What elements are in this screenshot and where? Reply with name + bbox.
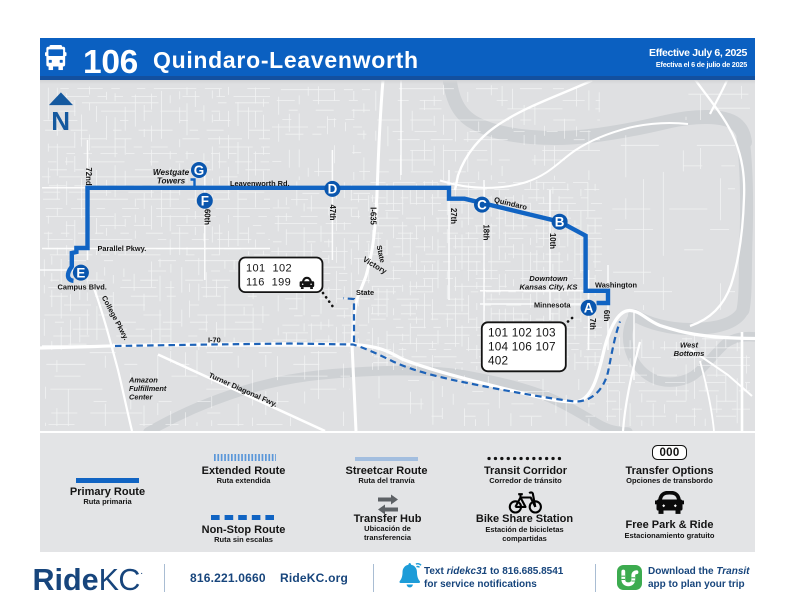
svg-text:6th: 6th bbox=[602, 309, 611, 321]
svg-text:Leavenworth Rd.: Leavenworth Rd. bbox=[230, 179, 290, 188]
svg-text:18th: 18th bbox=[482, 224, 491, 240]
svg-text:Towers: Towers bbox=[157, 176, 186, 185]
svg-text:N: N bbox=[51, 106, 70, 136]
svg-text:D: D bbox=[328, 181, 338, 196]
svg-text:101 102: 101 102 bbox=[246, 262, 292, 274]
svg-text:I-70: I-70 bbox=[208, 335, 221, 344]
svg-text:C: C bbox=[477, 197, 487, 212]
svg-text:Parallel Pkwy.: Parallel Pkwy. bbox=[98, 244, 147, 253]
svg-text:G: G bbox=[194, 162, 204, 177]
svg-text:B: B bbox=[555, 214, 565, 229]
svg-text:Kansas City, KS: Kansas City, KS bbox=[520, 282, 578, 291]
svg-text:Washington: Washington bbox=[595, 280, 637, 289]
svg-text:Campus Blvd.: Campus Blvd. bbox=[58, 282, 107, 291]
svg-text:27th: 27th bbox=[449, 207, 458, 223]
svg-text:A: A bbox=[584, 300, 594, 315]
svg-text:47th: 47th bbox=[328, 204, 337, 220]
svg-text:116 199: 116 199 bbox=[246, 276, 291, 288]
svg-text:104 106 107: 104 106 107 bbox=[488, 339, 556, 353]
svg-text:101 102 103: 101 102 103 bbox=[488, 325, 556, 339]
svg-text:Minnesota: Minnesota bbox=[534, 300, 571, 309]
svg-text:State: State bbox=[356, 288, 374, 297]
svg-text:Bottoms: Bottoms bbox=[674, 349, 705, 358]
svg-text:Center: Center bbox=[129, 392, 154, 401]
svg-text:E: E bbox=[76, 265, 85, 280]
svg-text:7th: 7th bbox=[588, 318, 597, 330]
svg-text:72nd: 72nd bbox=[84, 167, 93, 185]
svg-text:F: F bbox=[201, 193, 209, 208]
svg-text:60th: 60th bbox=[203, 208, 212, 224]
svg-text:I-635: I-635 bbox=[369, 207, 378, 225]
svg-text:402: 402 bbox=[488, 353, 508, 367]
svg-text:10th: 10th bbox=[548, 232, 557, 248]
